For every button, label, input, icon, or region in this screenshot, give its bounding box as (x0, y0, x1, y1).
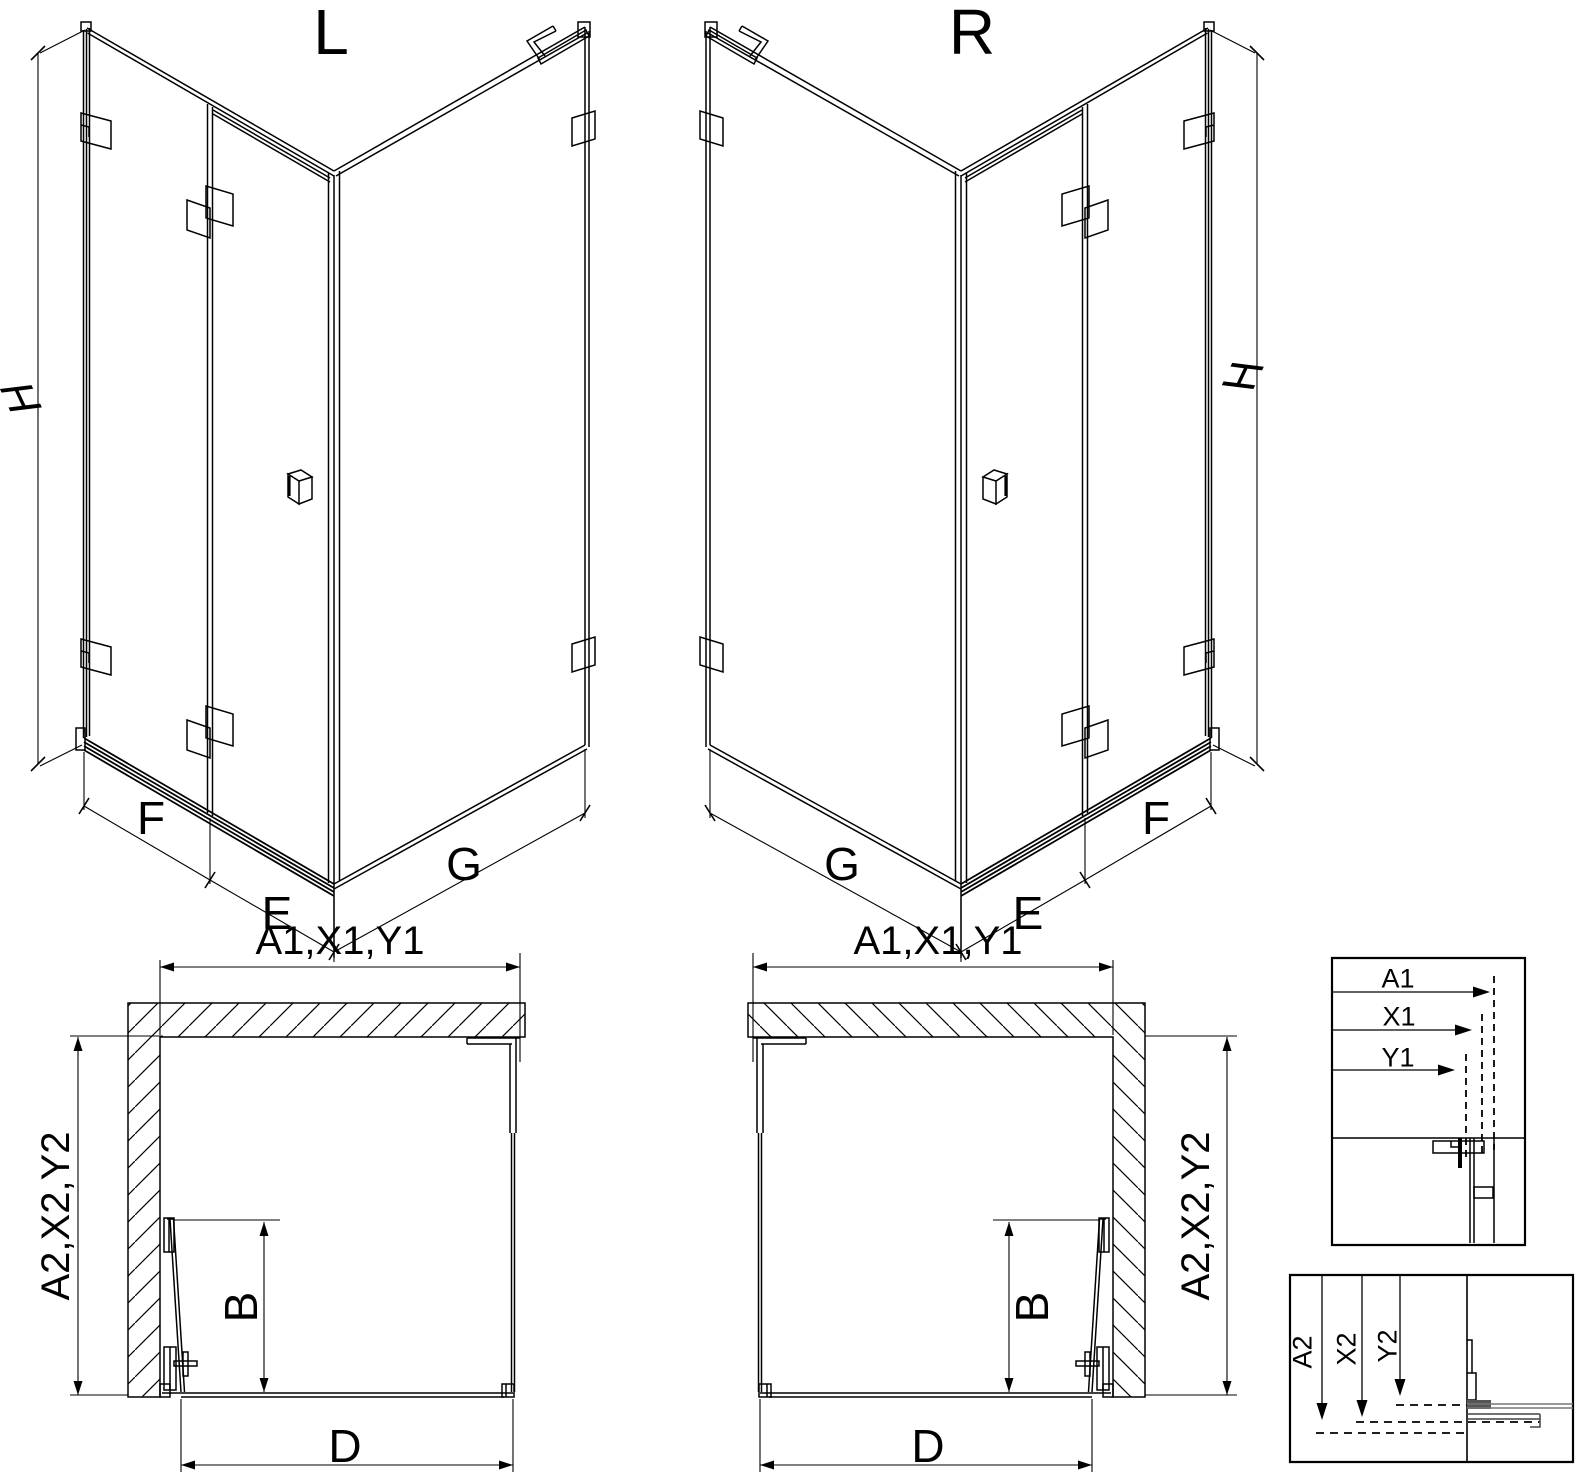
iso-view-left (31, 22, 595, 962)
plan-left-entry-label: D (328, 1423, 361, 1469)
profile-section-bottom (1467, 1340, 1573, 1427)
iso-right-title: R (949, 0, 995, 64)
detail-inset-depth (1290, 1275, 1573, 1462)
detail-x1-label: X1 (1382, 1004, 1415, 1031)
detail-inset-width (1332, 958, 1525, 1245)
detail-x2-label: X2 (1334, 1332, 1361, 1365)
plan-left-width-label: A1,X1,Y1 (255, 921, 424, 961)
dim-label-f-right: F (1142, 795, 1170, 841)
plan-right-entry-label: D (911, 1423, 944, 1469)
plan-view-left (70, 953, 525, 1472)
plan-right-depth-label: A2,X2,Y2 (1176, 1131, 1216, 1300)
detail-a1-label: A1 (1381, 966, 1414, 993)
profile-section-top (1433, 1138, 1494, 1243)
plan-right-door-label: B (1009, 1292, 1055, 1323)
dim-label-height-right: H (1214, 359, 1273, 393)
dim-label-g-right: G (824, 841, 860, 887)
blueprint-canvas: L R H H F E G G E F A1,X1,Y1 A2,X2,Y2 B … (0, 0, 1581, 1479)
plan-left-depth-label: A2,X2,Y2 (36, 1131, 76, 1300)
detail-y2-label: Y2 (1375, 1329, 1402, 1362)
dim-label-g-left: G (446, 841, 482, 887)
plan-view-right (748, 953, 1237, 1472)
plan-right-width-label: A1,X1,Y1 (853, 921, 1022, 961)
dim-label-f-left: F (137, 795, 165, 841)
iso-left-title: L (313, 0, 349, 64)
plan-left-door-label: B (218, 1292, 264, 1323)
detail-y1-label: Y1 (1381, 1045, 1414, 1072)
iso-view-right (700, 22, 1264, 962)
detail-a2-label: A2 (1290, 1335, 1317, 1368)
technical-drawing (0, 0, 1581, 1479)
